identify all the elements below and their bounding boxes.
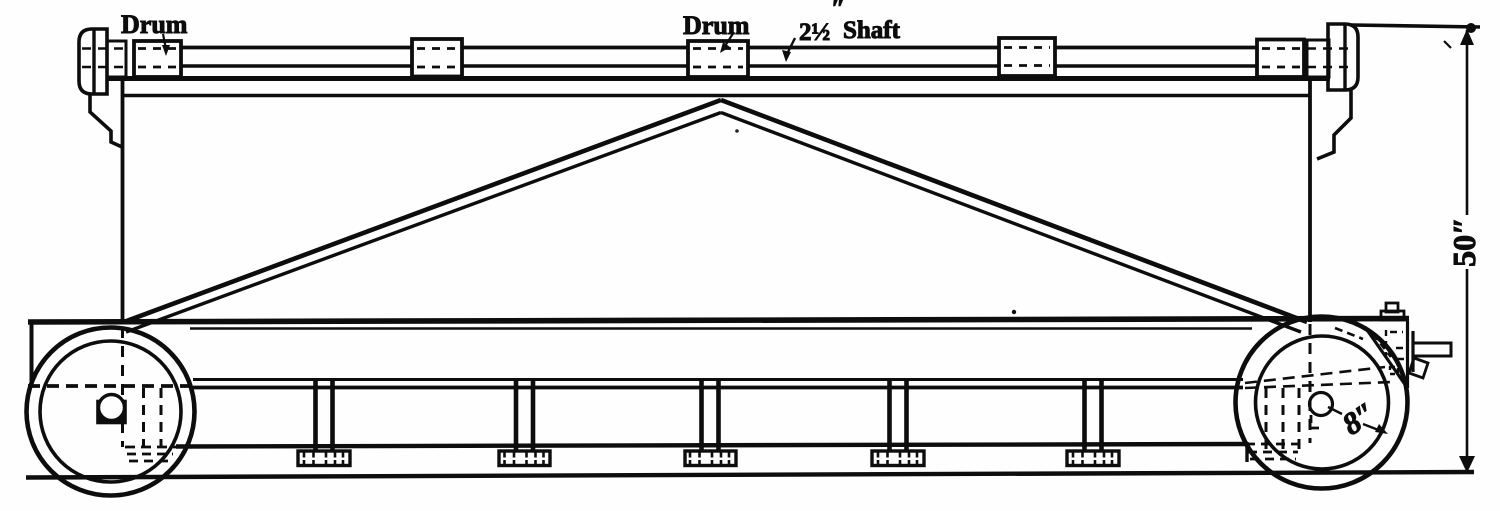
svg-text:Drum: Drum [683,11,750,40]
svg-text:50″: 50″ [1446,217,1482,267]
svg-text:Drum: Drum [121,10,188,39]
svg-text:2½: 2½ [799,19,830,46]
svg-text:8″: 8″ [1336,395,1382,442]
svg-text:Shaft: Shaft [843,17,901,44]
